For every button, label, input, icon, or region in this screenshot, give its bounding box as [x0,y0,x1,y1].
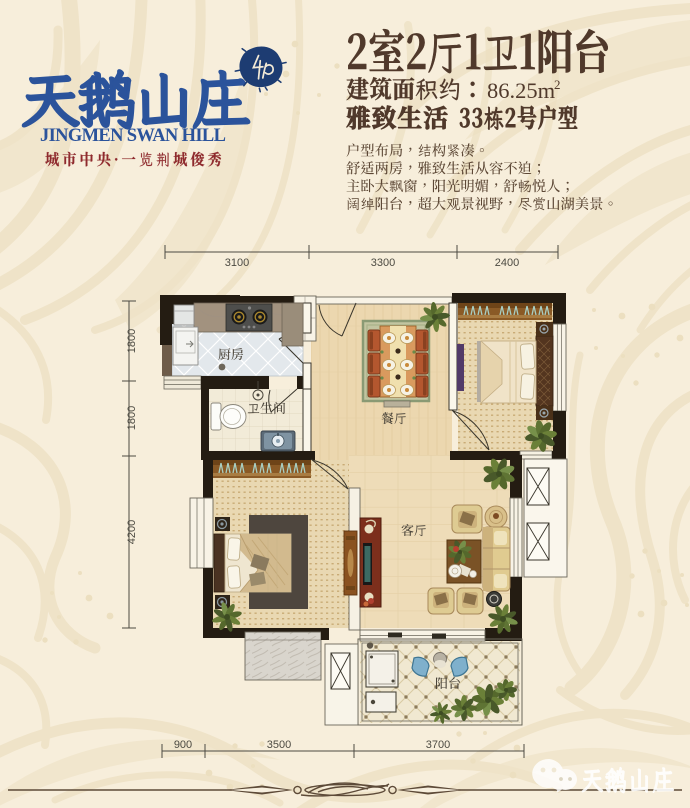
svg-text:4200: 4200 [126,520,138,544]
svg-text:3500: 3500 [267,739,291,751]
svg-text:3100: 3100 [225,257,249,269]
svg-text:900: 900 [174,739,192,751]
svg-text:86.25m: 86.25m [487,78,556,103]
svg-text:1800: 1800 [126,329,138,353]
svg-text:JINGMEN SWAN HILL: JINGMEN SWAN HILL [40,126,226,146]
svg-text:2400: 2400 [495,257,519,269]
svg-text:1800: 1800 [126,406,138,430]
svg-text:3300: 3300 [371,257,395,269]
svg-text:2: 2 [554,77,561,92]
svg-text:3700: 3700 [426,739,450,751]
